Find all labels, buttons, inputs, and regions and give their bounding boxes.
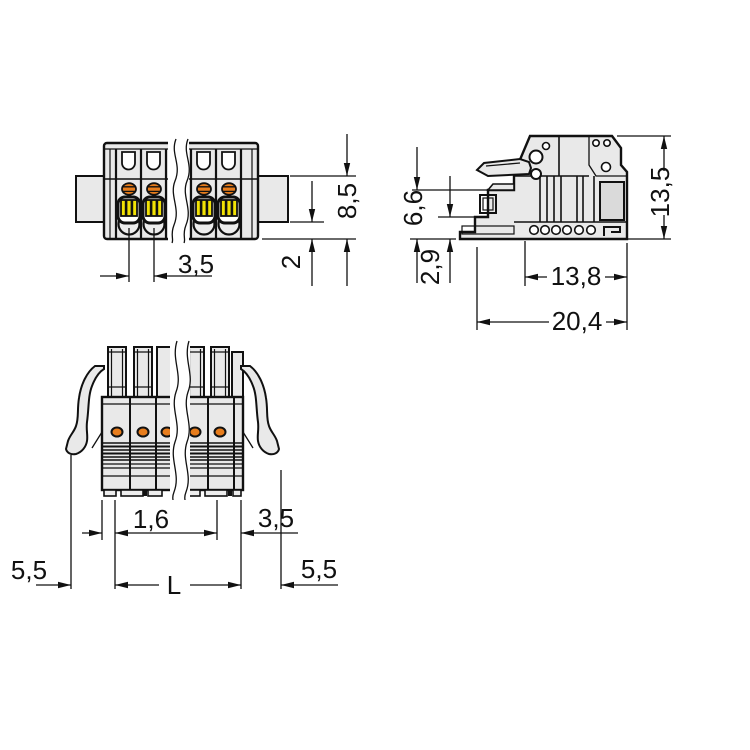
side-view: 6,6 2,9 13,5 13,8 20,4 <box>398 136 675 336</box>
dim-label-left-lever: 5,5 <box>11 555 47 585</box>
locking-lever-side <box>477 159 531 176</box>
dim-label-total-height-front: 8,5 <box>332 183 362 219</box>
dimension-left-lever-5-5: 5,5 <box>11 555 71 588</box>
carrier-strip-right <box>258 176 288 222</box>
pole-tower <box>211 347 229 397</box>
locking-lever-right <box>241 366 279 454</box>
dim-label-pitch: 3,5 <box>178 249 214 279</box>
dim-label-right-lever: 5,5 <box>301 554 337 584</box>
bottom-view: 1,6 3,5 5,5 L 5,5 <box>11 341 338 600</box>
pole-tower <box>108 347 126 397</box>
dim-label-total-height-side: 13,5 <box>645 167 675 218</box>
dim-label-housing-depth: 13,8 <box>551 261 602 291</box>
dimension-length-L: L <box>115 570 241 600</box>
pole-tower <box>134 347 152 397</box>
dimension-right-lever-5-5: 5,5 <box>281 554 338 588</box>
technical-drawing-page: 3,5 8,5 2 <box>0 0 750 750</box>
front-view: 3,5 8,5 2 <box>76 134 362 286</box>
dim-label-total-depth: 20,4 <box>552 306 603 336</box>
carrier-strip-left <box>76 176 104 222</box>
break-lines-front <box>168 139 189 243</box>
end-wall <box>232 352 243 397</box>
dimension-pin-to-edge-3-5: 3,5 <box>241 503 298 536</box>
dim-label-foot-height: 2,9 <box>415 249 445 285</box>
dim-label-pin-to-edge: 3,5 <box>258 503 294 533</box>
connector-dimension-drawing: 3,5 8,5 2 <box>0 0 750 750</box>
dim-label-strip-height: 2 <box>276 255 306 269</box>
locking-lever-left <box>66 366 104 454</box>
dim-label-length: L <box>167 570 181 600</box>
pivot-hole <box>530 151 543 164</box>
side-recess-panel <box>600 182 624 220</box>
dim-label-edge-to-pin: 1,6 <box>133 504 169 534</box>
dim-label-front-height: 6,6 <box>398 190 428 226</box>
break-lines-bottom <box>170 341 190 500</box>
